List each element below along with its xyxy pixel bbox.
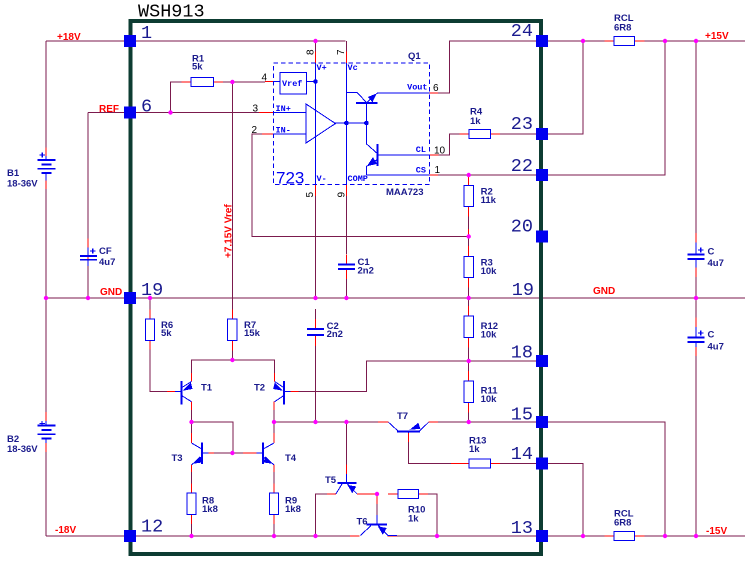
svg-text:Q1: Q1 (408, 51, 421, 62)
svg-text:3: 3 (252, 104, 258, 115)
svg-text:1k8: 1k8 (202, 504, 218, 515)
svg-text:CF: CF (99, 246, 112, 257)
svg-text:9: 9 (337, 192, 348, 198)
svg-text:723: 723 (276, 169, 304, 188)
svg-text:2: 2 (251, 125, 257, 136)
svg-text:4u7: 4u7 (99, 257, 115, 268)
svg-text:MAA723: MAA723 (386, 187, 424, 198)
svg-text:1: 1 (435, 165, 441, 176)
svg-text:2n2: 2n2 (327, 329, 343, 340)
svg-text:5: 5 (305, 192, 316, 198)
svg-text:Vref: Vref (282, 79, 302, 89)
svg-text:T2: T2 (254, 383, 265, 394)
svg-text:WSH913: WSH913 (138, 2, 205, 23)
svg-text:T7: T7 (397, 411, 408, 422)
svg-text:REF: REF (99, 104, 119, 115)
svg-text:B1: B1 (7, 168, 20, 179)
svg-text:1k: 1k (470, 116, 481, 127)
svg-text:V+: V+ (317, 63, 327, 73)
svg-text:5k: 5k (192, 62, 203, 73)
svg-text:6: 6 (141, 97, 152, 118)
svg-text:Vout: Vout (407, 83, 427, 93)
svg-text:T3: T3 (172, 453, 183, 464)
svg-text:T6: T6 (357, 517, 368, 528)
svg-text:6: 6 (433, 83, 439, 94)
svg-text:1: 1 (141, 23, 152, 44)
svg-text:19: 19 (512, 280, 534, 301)
svg-text:15k: 15k (244, 328, 261, 339)
svg-text:10: 10 (434, 146, 446, 157)
svg-text:11k: 11k (481, 195, 497, 206)
svg-text:-18V: -18V (55, 525, 76, 536)
svg-text:10k: 10k (481, 330, 498, 341)
svg-text:CS: CS (416, 166, 426, 176)
svg-text:T5: T5 (325, 475, 337, 486)
svg-text:18-36V: 18-36V (7, 179, 38, 190)
svg-text:GND: GND (100, 287, 122, 298)
svg-text:6R8: 6R8 (614, 518, 631, 529)
svg-text:2n2: 2n2 (358, 266, 374, 277)
svg-text:23: 23 (511, 114, 533, 135)
svg-text:13: 13 (511, 518, 533, 539)
svg-text:T1: T1 (201, 383, 213, 394)
svg-text:C: C (708, 247, 715, 258)
svg-text:8: 8 (306, 49, 317, 55)
svg-text:1k: 1k (408, 514, 419, 525)
svg-text:GND: GND (593, 286, 615, 297)
svg-text:14: 14 (511, 444, 533, 465)
svg-text:20: 20 (511, 217, 533, 238)
svg-text:5k: 5k (161, 328, 172, 339)
svg-text:C: C (708, 330, 715, 341)
svg-text:1k: 1k (469, 444, 480, 455)
svg-text:Vc: Vc (348, 63, 358, 73)
svg-text:+18V: +18V (57, 32, 81, 43)
svg-text:15: 15 (511, 405, 533, 426)
svg-text:IN-: IN- (276, 126, 291, 136)
svg-text:COMP: COMP (348, 174, 368, 184)
svg-text:24: 24 (511, 21, 533, 42)
svg-text:4u7: 4u7 (708, 258, 724, 269)
svg-text:T4: T4 (285, 453, 297, 464)
svg-text:19: 19 (141, 280, 163, 301)
svg-text:7: 7 (336, 49, 347, 55)
svg-text:22: 22 (511, 156, 533, 177)
svg-text:4u7: 4u7 (708, 342, 724, 353)
svg-text:CL: CL (416, 145, 426, 155)
svg-text:6R8: 6R8 (614, 23, 631, 34)
svg-text:+15V: +15V (705, 31, 729, 42)
svg-text:1k8: 1k8 (285, 504, 301, 515)
svg-text:10k: 10k (481, 266, 498, 277)
svg-text:18-36V: 18-36V (7, 444, 38, 455)
svg-text:10k: 10k (481, 394, 498, 405)
svg-text:+7.15V Vref: +7.15V Vref (224, 204, 235, 258)
svg-text:18: 18 (511, 343, 533, 364)
svg-text:V-: V- (317, 174, 327, 184)
svg-text:12: 12 (141, 517, 163, 538)
svg-text:IN+: IN+ (276, 104, 291, 114)
svg-text:-15V: -15V (706, 526, 727, 537)
svg-text:4: 4 (261, 73, 267, 84)
